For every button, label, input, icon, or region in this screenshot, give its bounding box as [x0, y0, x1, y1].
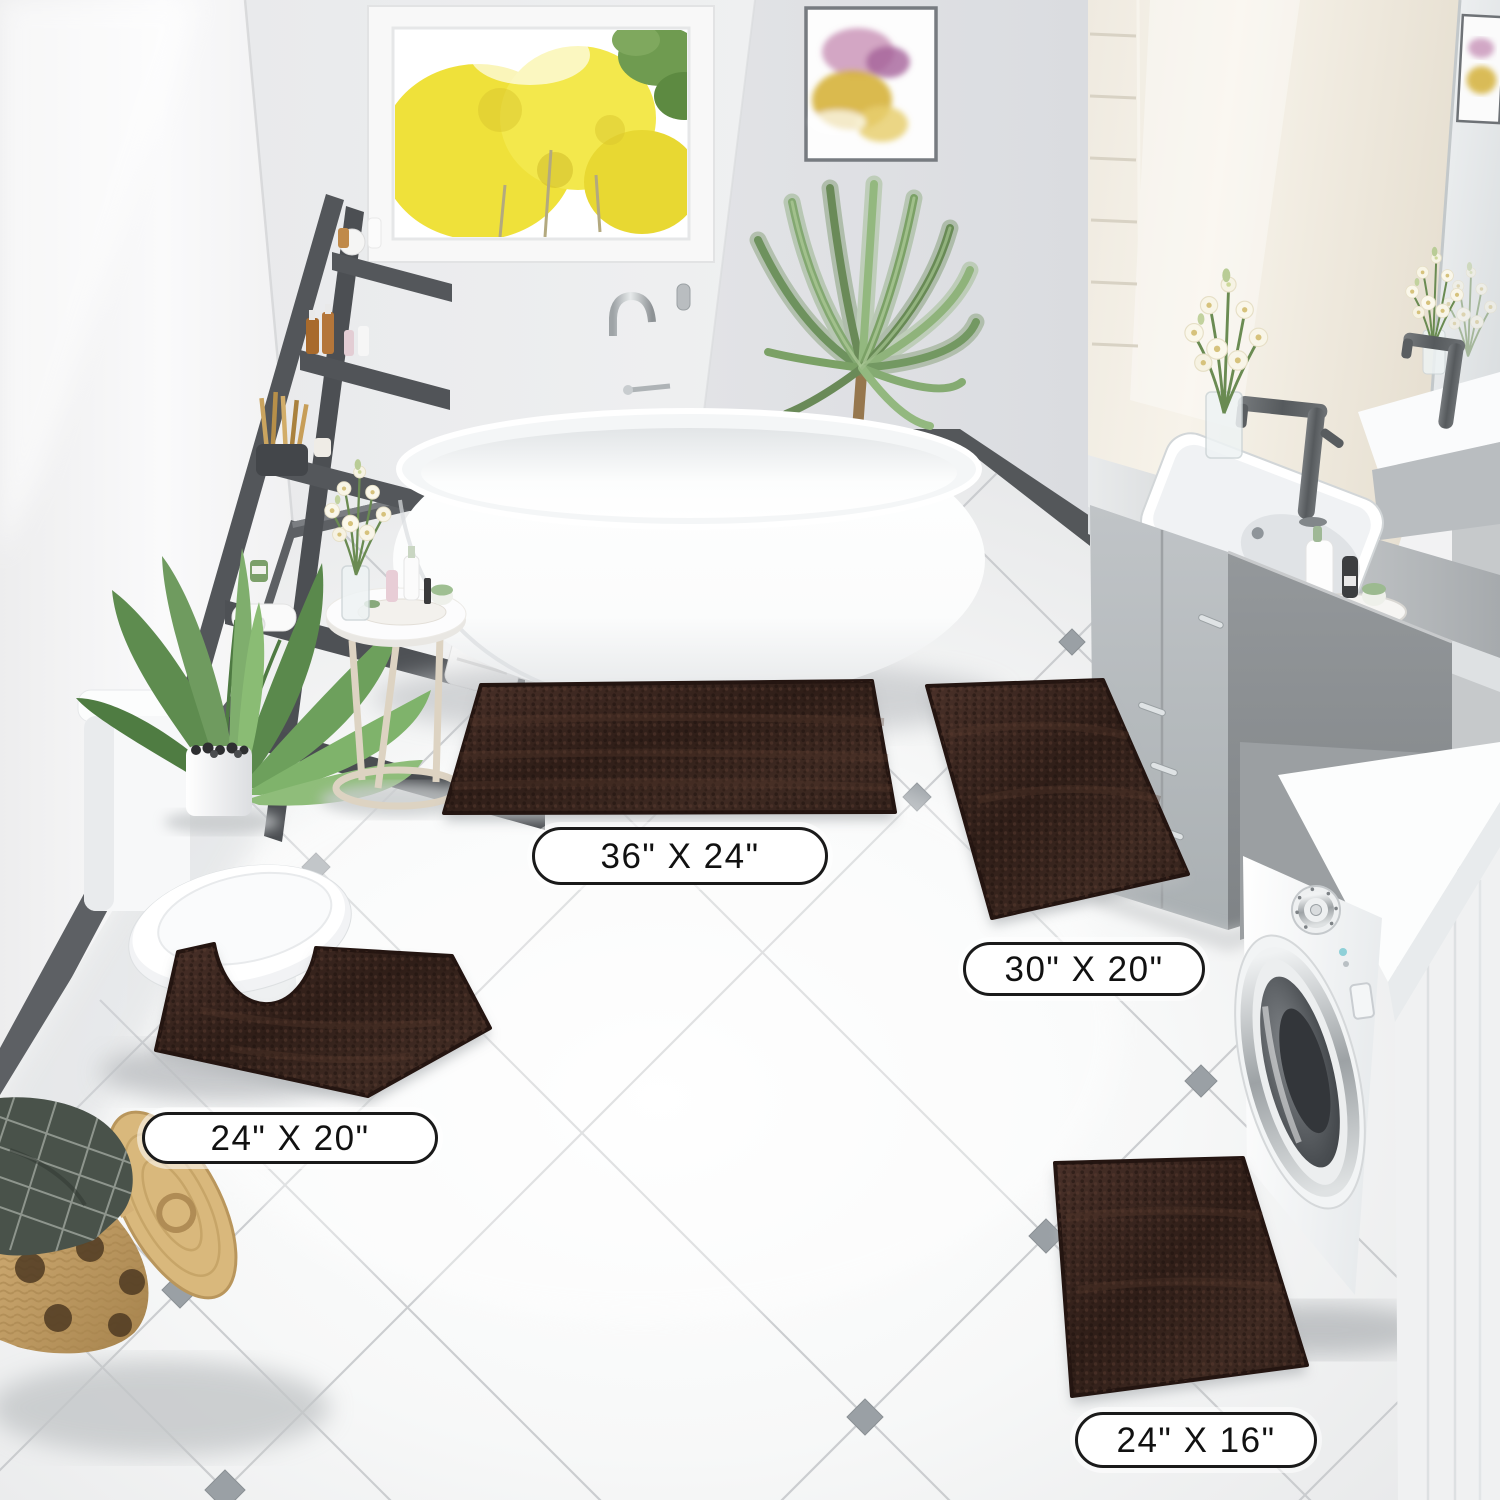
- window-view: [380, 24, 714, 240]
- wall-art: [806, 8, 936, 160]
- size-label-30x20: 30" X 20": [963, 942, 1205, 996]
- size-label-36x24: 36" X 24": [532, 827, 828, 885]
- washer-indicator-light: [1339, 948, 1347, 956]
- amber-bottle: [306, 318, 319, 354]
- plant-pot: [186, 746, 252, 816]
- size-label-24x20: 24" X 20": [142, 1112, 438, 1164]
- mascara: [424, 578, 431, 604]
- bathroom-product-photo: 36" X 24" 30" X 20" 24" X 20" 24" X 16": [0, 0, 1500, 1500]
- pump-bottle: [404, 556, 419, 600]
- pink-bottle: [344, 330, 354, 356]
- detergent-drawer: [1350, 983, 1375, 1019]
- size-label-24x16: 24" X 16": [1075, 1412, 1317, 1468]
- amber-jar: [338, 228, 349, 248]
- cream-jar: [314, 438, 331, 457]
- mirror-art-reflection: [1457, 15, 1500, 123]
- bathroom-scene: [0, 0, 1500, 1500]
- rug-36x24: [444, 681, 895, 821]
- white-bottle: [368, 218, 381, 248]
- pink-cosmetic: [386, 570, 398, 602]
- window: [368, 6, 714, 262]
